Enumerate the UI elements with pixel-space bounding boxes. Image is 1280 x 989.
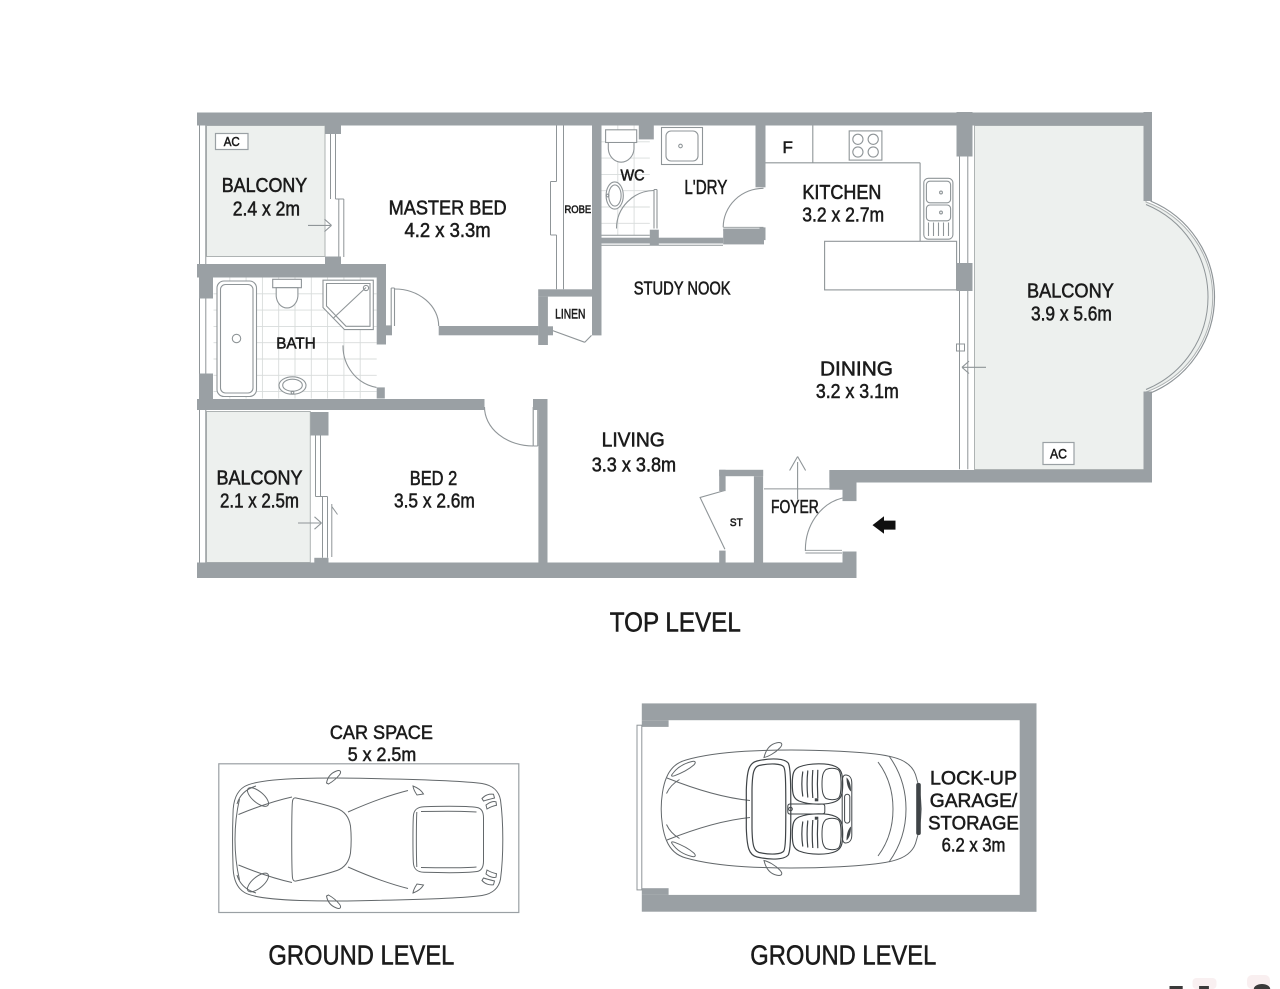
svg-text:TOP LEVEL: TOP LEVEL xyxy=(610,607,741,638)
svg-text:ROBE: ROBE xyxy=(564,204,591,216)
svg-text:AC: AC xyxy=(1050,447,1067,462)
svg-text:2.1 x 2.5m: 2.1 x 2.5m xyxy=(220,491,299,513)
svg-text:GARAGE/: GARAGE/ xyxy=(930,790,1018,812)
svg-text:BED 2: BED 2 xyxy=(410,468,457,490)
svg-text:LINEN: LINEN xyxy=(555,305,585,321)
svg-text:LOCK-UP: LOCK-UP xyxy=(930,768,1017,790)
svg-text:2.4 x 2m: 2.4 x 2m xyxy=(233,199,300,221)
svg-text:BALCONY: BALCONY xyxy=(222,175,308,197)
svg-text:BALCONY: BALCONY xyxy=(217,467,303,489)
svg-text:KITCHEN: KITCHEN xyxy=(802,182,881,204)
svg-text:ST: ST xyxy=(730,517,743,529)
svg-text:L'DRY: L'DRY xyxy=(684,177,727,199)
svg-text:MASTER BED: MASTER BED xyxy=(389,197,507,219)
svg-text:5 x 2.5m: 5 x 2.5m xyxy=(348,744,416,766)
svg-text:LIVING: LIVING xyxy=(602,429,665,451)
svg-text:BATH: BATH xyxy=(276,335,316,352)
svg-text:FOYER: FOYER xyxy=(771,497,819,517)
svg-text:4.2 x 3.3m: 4.2 x 3.3m xyxy=(405,220,491,242)
svg-text:3.5 x 2.6m: 3.5 x 2.6m xyxy=(394,491,475,513)
svg-text:F: F xyxy=(783,138,793,157)
svg-text:CAR SPACE: CAR SPACE xyxy=(330,722,433,744)
svg-text:DINING: DINING xyxy=(820,359,893,381)
svg-text:6.2 x 3m: 6.2 x 3m xyxy=(942,835,1006,857)
svg-text:AC: AC xyxy=(224,134,240,149)
svg-text:3.3 x 3.8m: 3.3 x 3.8m xyxy=(592,455,676,477)
svg-text:3.2 x 3.1m: 3.2 x 3.1m xyxy=(816,381,899,403)
svg-text:GROUND LEVEL: GROUND LEVEL xyxy=(750,940,936,971)
svg-text:GROUND LEVEL: GROUND LEVEL xyxy=(268,940,454,971)
svg-text:STUDY NOOK: STUDY NOOK xyxy=(634,278,731,298)
svg-text:3.2 x 2.7m: 3.2 x 2.7m xyxy=(802,204,884,226)
svg-text:STORAGE: STORAGE xyxy=(928,812,1019,834)
svg-text:BALCONY: BALCONY xyxy=(1027,281,1114,303)
svg-text:3.9 x 5.6m: 3.9 x 5.6m xyxy=(1031,304,1112,326)
svg-text:WC: WC xyxy=(620,168,644,185)
